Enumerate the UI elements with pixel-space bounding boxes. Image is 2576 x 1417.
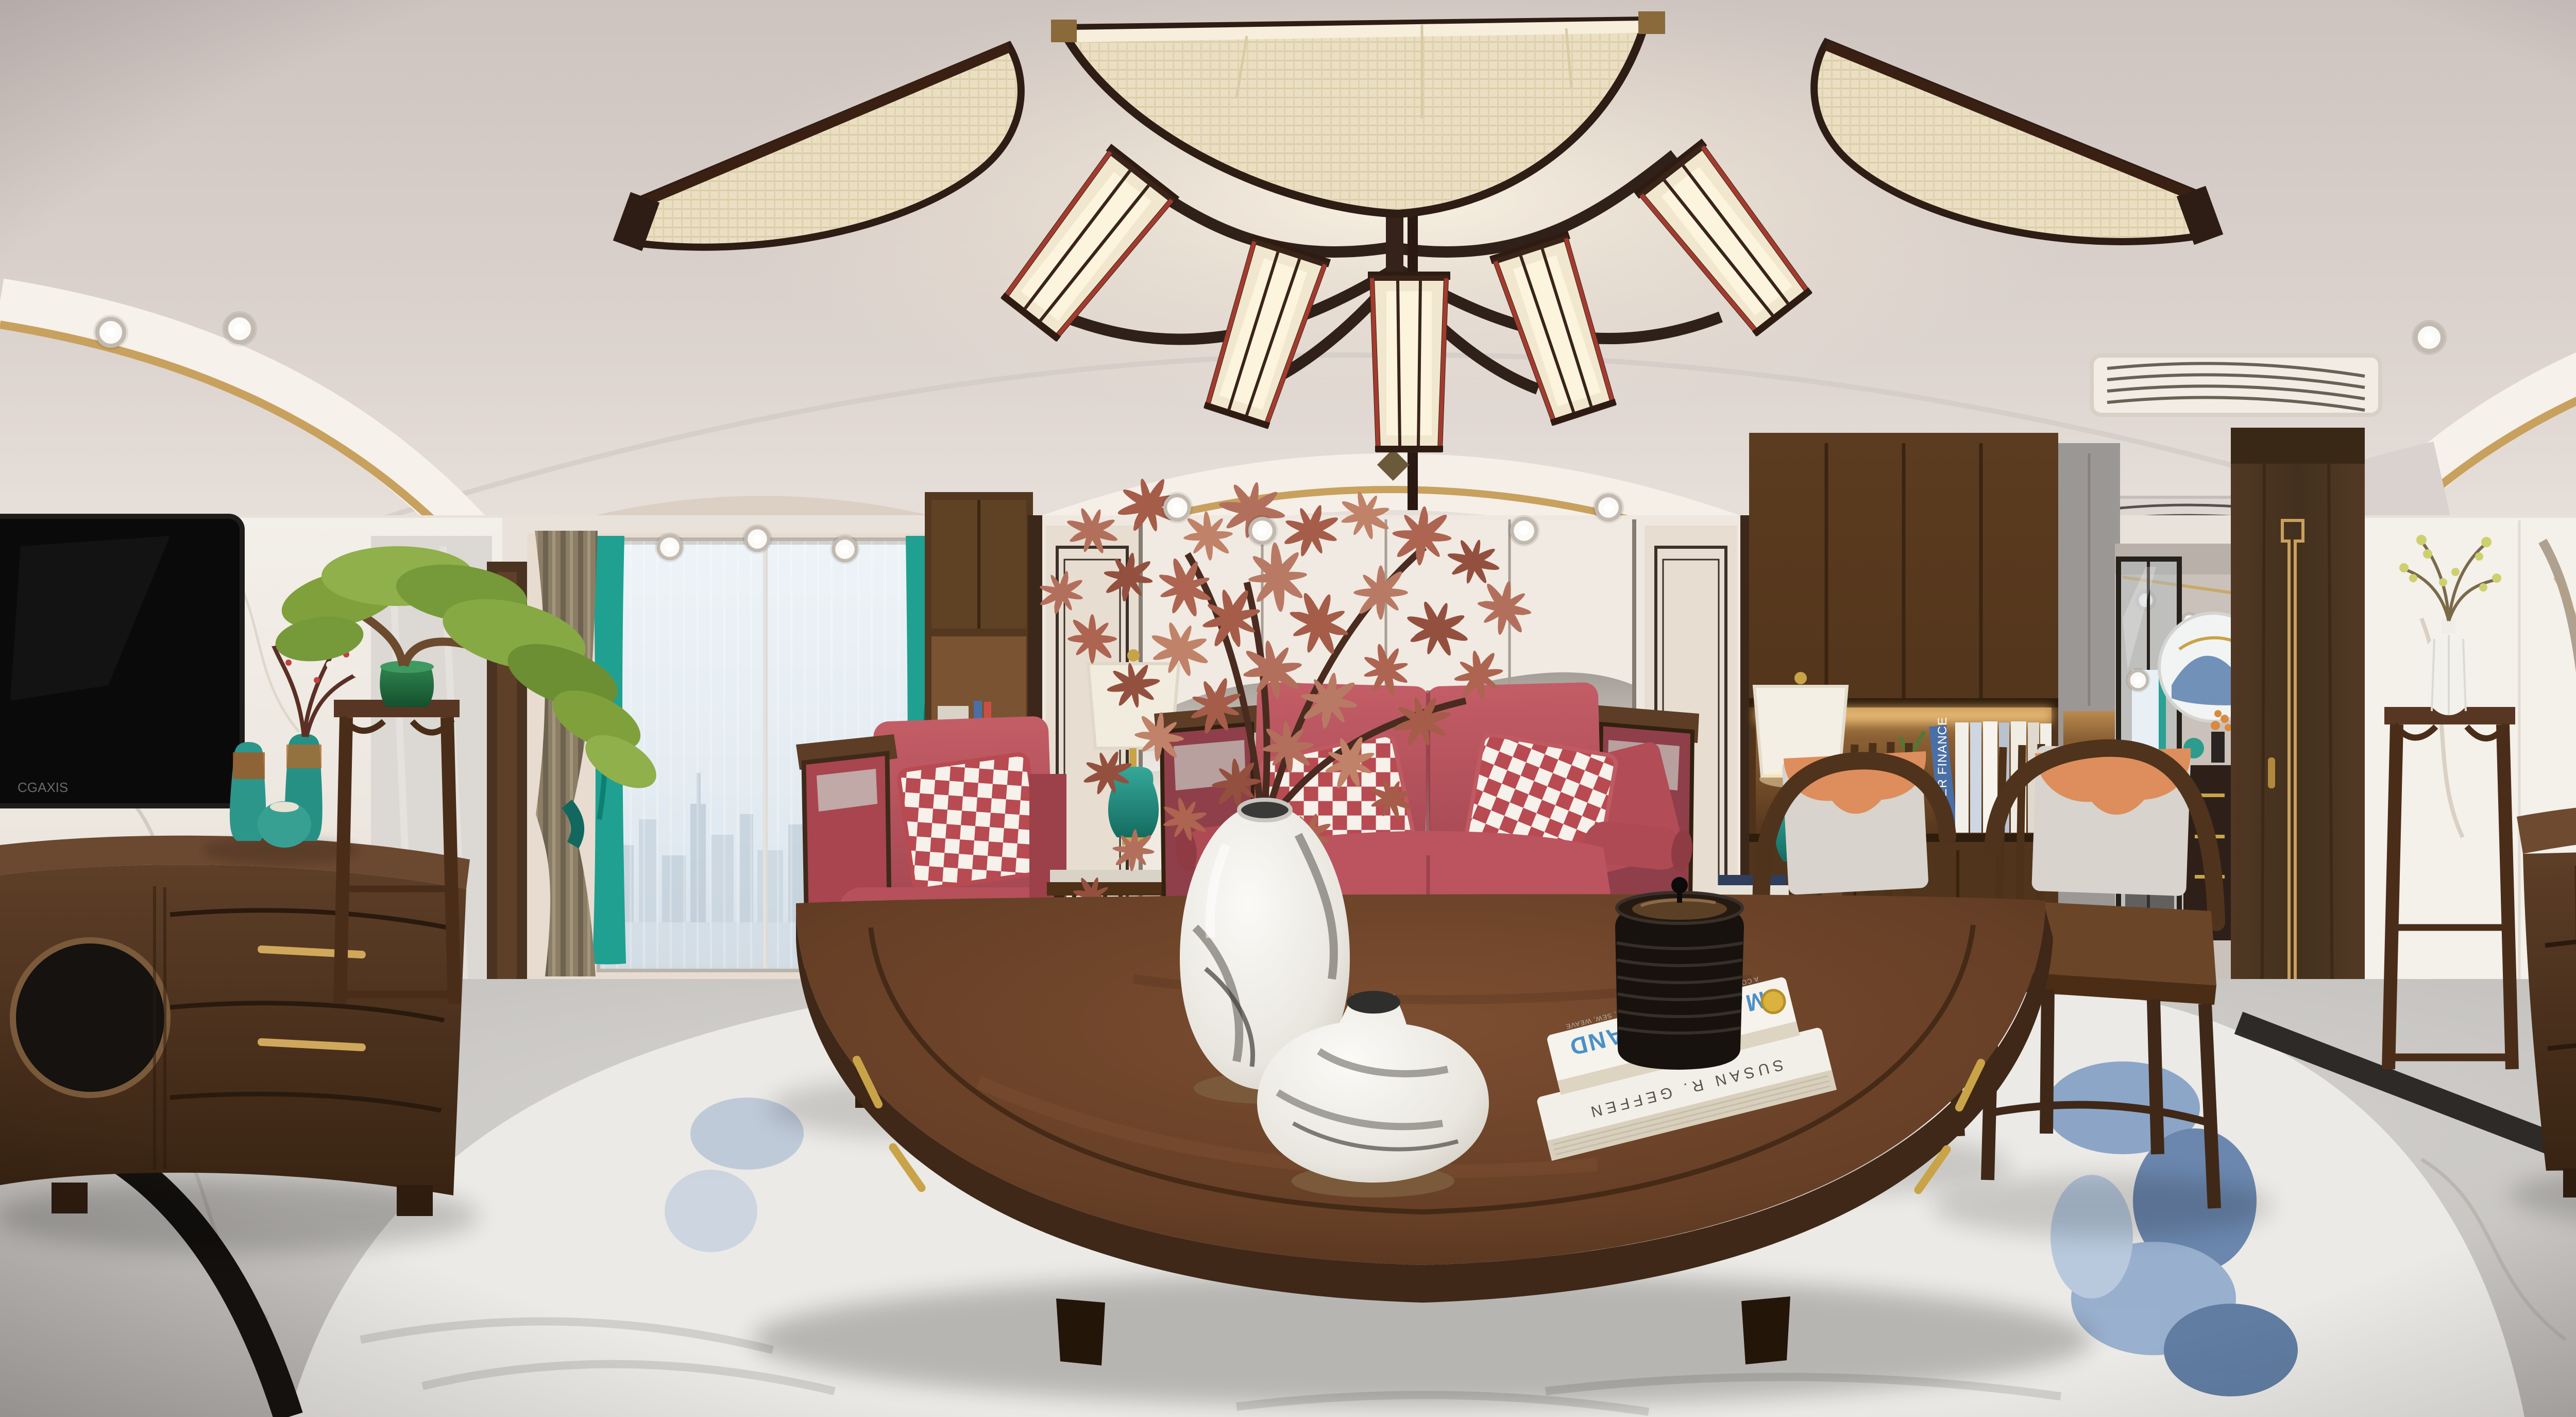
panorama-living-room: CGAXIS <box>0 0 2576 1417</box>
scene-canvas: CGAXIS <box>0 0 2576 1417</box>
vignette <box>0 0 2576 1417</box>
